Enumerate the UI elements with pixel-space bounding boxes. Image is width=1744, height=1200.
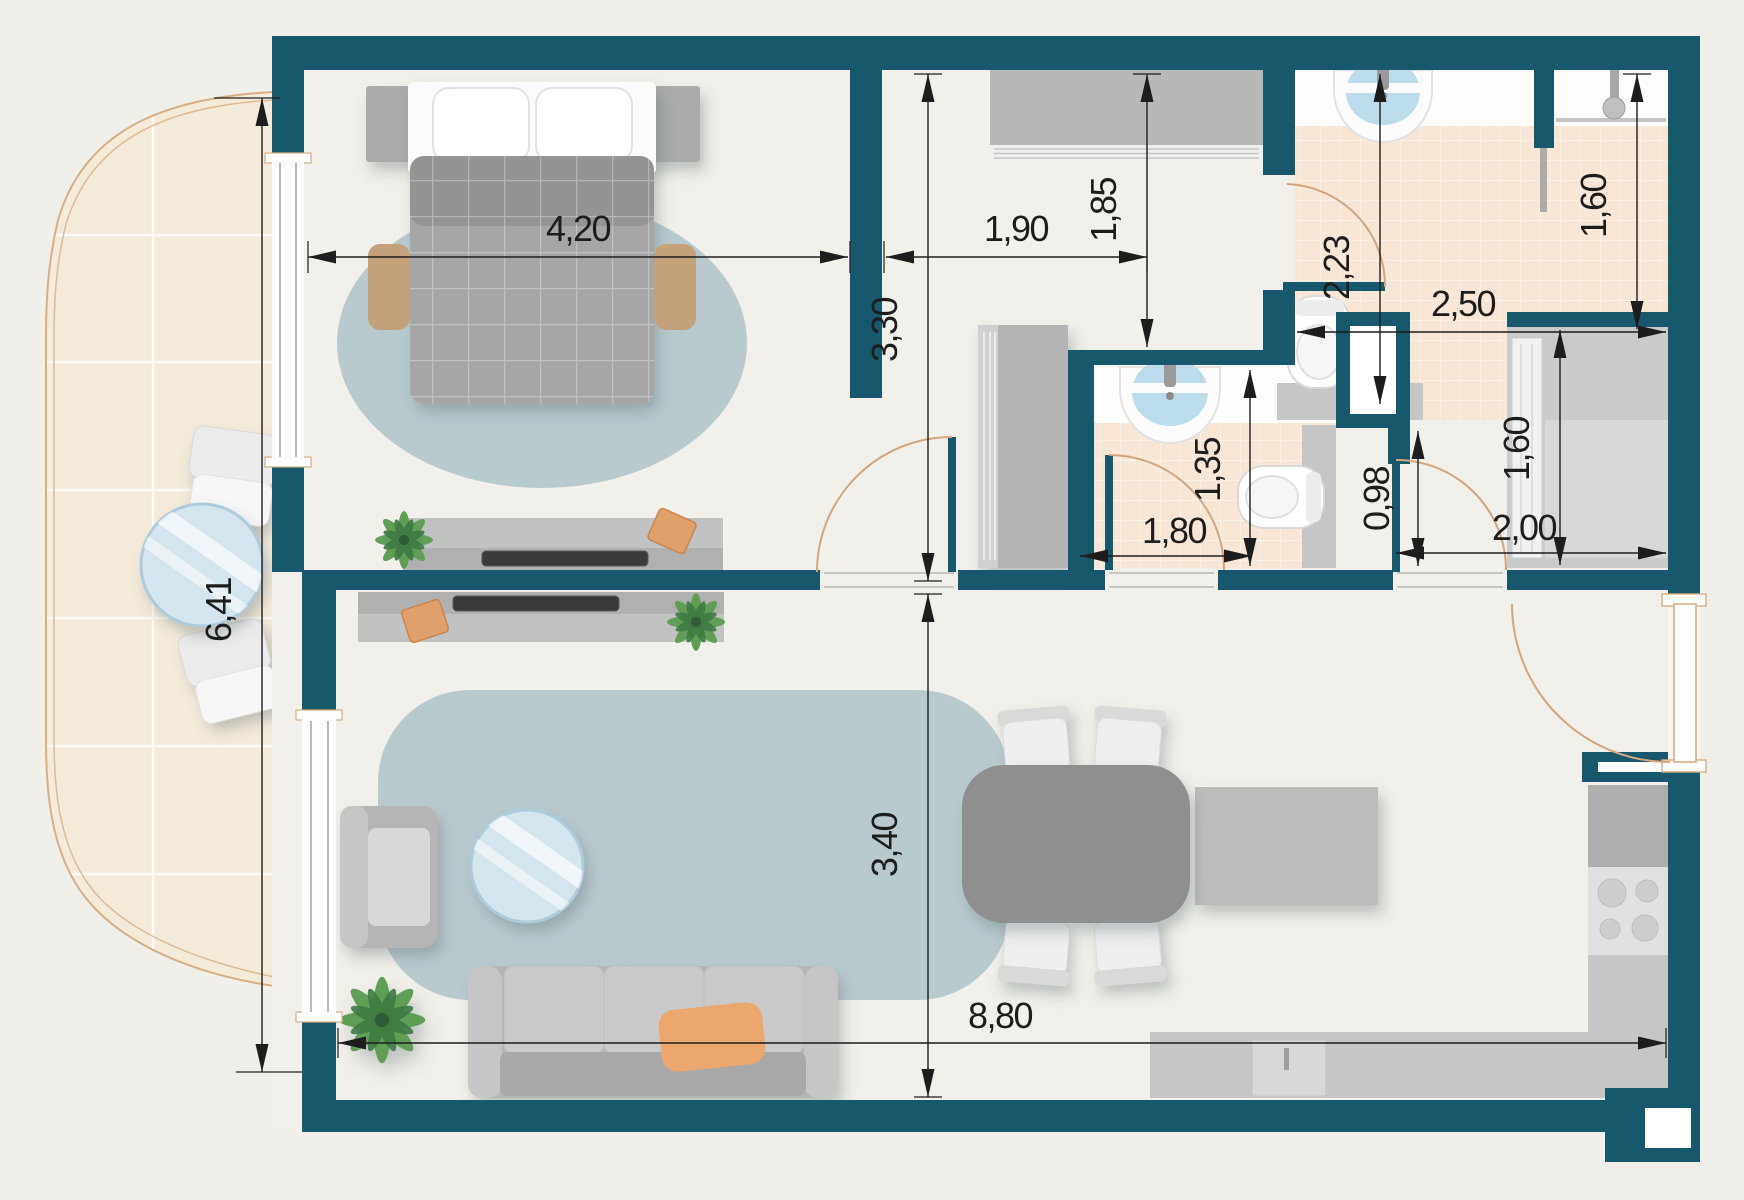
living-room-rug	[378, 690, 1010, 1000]
kitchen-dishwasher	[1252, 1040, 1326, 1096]
duvet-fold-pattern	[410, 156, 654, 226]
wall-mainbath-left-lower	[1263, 290, 1295, 365]
wall-left-mid	[272, 460, 304, 572]
living-tv	[453, 596, 619, 611]
pillow-left	[433, 88, 529, 162]
floor-plan-canvas: 4,20 1,90 1,85 3,30 2,23 2,50 1,60 1,35 …	[0, 0, 1744, 1200]
armchair	[340, 806, 438, 948]
bedroom-tv	[482, 551, 648, 566]
wall-shower-partition	[1534, 70, 1554, 148]
wall-right-upper	[1668, 36, 1700, 602]
dim-label-shower-depth: 1,60	[1573, 173, 1614, 238]
shower-rod	[1540, 146, 1547, 212]
dim-label-living-depth: 3,40	[864, 812, 905, 877]
dim-label-bedroom-depth: 3,30	[864, 297, 905, 362]
wall-mid-a	[336, 570, 820, 590]
dim-label-closet-depth: 1,60	[1496, 416, 1537, 481]
duct-shaft	[1336, 312, 1410, 428]
wall-wc-left	[1068, 350, 1094, 570]
dim-label-bedroom-width: 4,20	[546, 208, 611, 249]
dim-label-bathroom-depth: 2,23	[1316, 235, 1357, 300]
wall-mid-b	[958, 570, 1105, 590]
pillow-right	[536, 88, 632, 162]
wall-top	[272, 36, 1700, 70]
dining-table	[962, 765, 1190, 923]
balcony	[40, 80, 282, 1000]
living-desk	[358, 592, 724, 643]
hall-wardrobe	[990, 70, 1263, 161]
dim-label-corridor-width: 2,00	[1492, 507, 1557, 548]
dining-chair-bottom-left	[997, 917, 1074, 987]
dim-label-wc-depth: 1,35	[1187, 437, 1228, 502]
living-window	[296, 710, 342, 1022]
kitchen-fridge	[1588, 785, 1668, 867]
wall-closet-top	[1507, 312, 1668, 327]
wc-door-leaf	[1105, 455, 1113, 570]
dining-chair-bottom-right	[1090, 917, 1167, 987]
dim-label-corridor-depth: 0,98	[1356, 466, 1397, 531]
dim-label-wc-width: 1,80	[1142, 510, 1207, 551]
bedroom-door-leaf	[948, 437, 956, 572]
plant-living-desk	[667, 593, 725, 651]
plant-living-floor	[339, 977, 425, 1063]
sofa	[468, 966, 838, 1098]
double-bed	[408, 82, 656, 404]
dining-chair-top-left	[997, 705, 1074, 775]
wall-left-bottom	[302, 1016, 336, 1132]
kitchen-stove	[1588, 867, 1668, 955]
wall-left-jog	[302, 570, 336, 718]
wc-toilet	[1238, 466, 1324, 528]
wall-right-lower	[1668, 766, 1700, 1132]
kitchen-counter-right	[1588, 955, 1668, 1033]
dim-label-hall-width: 1,90	[984, 208, 1049, 249]
wall-mainbath-left-upper	[1263, 70, 1295, 175]
hall-cabinet	[978, 325, 1068, 568]
dining-bench	[1195, 787, 1378, 905]
sofa-pillow	[657, 1001, 767, 1074]
dim-label-balcony-length: 6,41	[198, 577, 239, 642]
wall-corridor-jamb	[1388, 428, 1410, 464]
dining-chair-top-right	[1090, 705, 1167, 775]
closet-floor-light	[1545, 420, 1668, 558]
floor-plan: 4,20 1,90 1,85 3,30 2,23 2,50 1,60 1,35 …	[0, 0, 1744, 1200]
entrance-door-leaf	[1674, 604, 1696, 762]
dim-label-apartment-width: 8,80	[968, 995, 1033, 1036]
dim-label-hall-depth: 1,85	[1083, 177, 1124, 242]
plant-bedroom-desk	[375, 511, 433, 569]
wall-wc-top	[1068, 350, 1273, 365]
dim-label-bathroom-width: 2,50	[1431, 283, 1496, 324]
wall-mid-d	[1507, 570, 1700, 590]
wall-bottom	[302, 1100, 1700, 1132]
kitchen-counter-bottom	[1150, 1032, 1668, 1098]
wall-bottom-right-step	[1605, 1088, 1700, 1162]
wall-mid-c	[1218, 570, 1393, 590]
shower-head-icon	[1603, 97, 1625, 119]
